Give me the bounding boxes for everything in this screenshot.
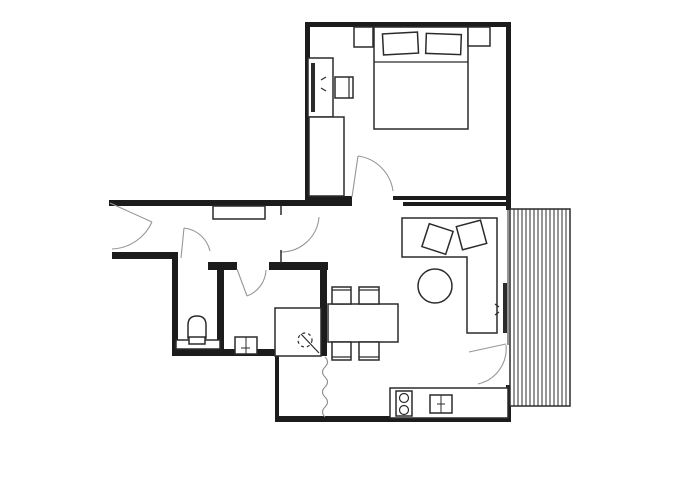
bedroom-wardrobe [309,117,344,196]
bedroom-tv [311,63,315,112]
bedroom-door-arc [358,156,393,191]
stove-burner-top [400,394,409,403]
wall-bedroom-bottom [393,196,511,200]
kitchen-break-line [323,357,328,417]
balcony-deck [510,209,570,406]
bedroom-door-leaf [352,156,358,197]
shower-enclosure [275,308,321,356]
stove-burner-bottom [400,406,409,415]
toilet-base [189,337,205,344]
wall-bath-tee-cap [208,262,237,270]
toilet [188,316,206,338]
nightstand-left [354,27,373,47]
wall-shower-room-top [269,262,328,270]
wall-bedroom-right [506,22,511,210]
balcony-door-arc [478,345,506,384]
toilet-door-leaf [181,228,184,258]
dining-table [328,304,398,342]
balcony-door-leaf [469,344,506,352]
shower-room-door-arc [247,270,266,296]
pillow-left [382,32,418,55]
wall-hall-bottom [112,252,175,259]
wall-living-top [403,202,511,206]
nightstand-right [468,27,490,46]
floor-plan-page [0,0,700,500]
toilet-door-arc [184,228,210,251]
pillow-right [426,33,462,54]
coffee-table [418,269,452,303]
floor-plan [0,0,700,500]
bedroom-stool [335,77,353,98]
wall-kitchen-nook-left [275,356,279,421]
shower-room-door-leaf [237,269,247,296]
living-tv [503,283,507,333]
dining-door-arc [281,217,319,252]
wall-bath-tee-stem [217,270,224,350]
wall-bedroom-door-stub [305,196,352,204]
entrance-door-arc [112,222,152,249]
hallway-shelf [213,206,265,219]
